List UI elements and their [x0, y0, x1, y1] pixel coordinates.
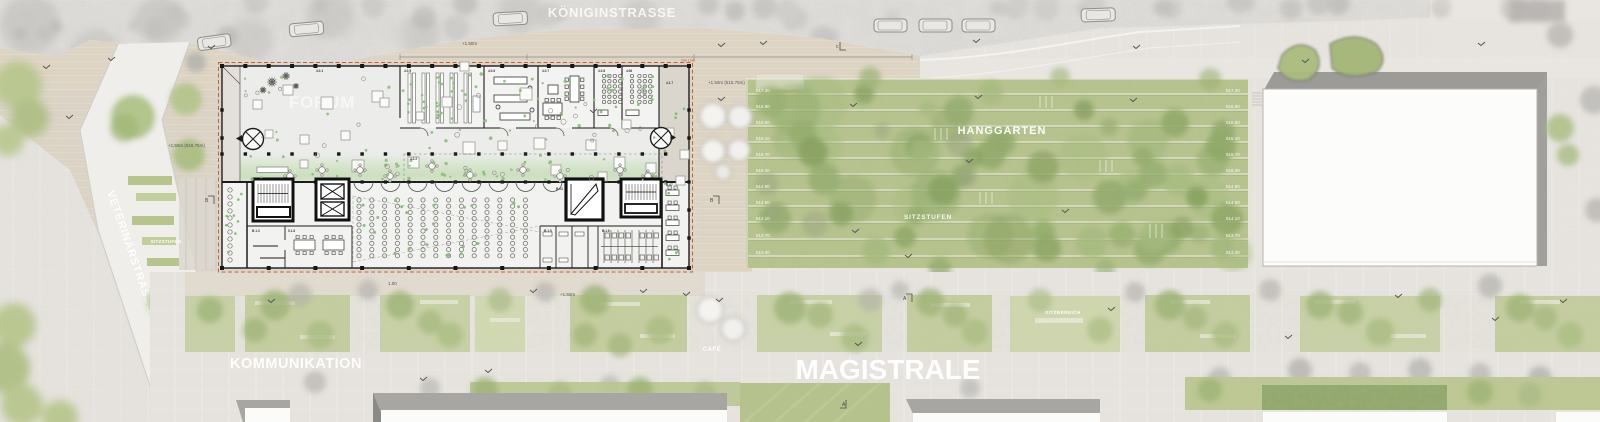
svg-text:513.30: 513.30	[756, 250, 770, 255]
svg-text:517.30: 517.30	[1226, 88, 1240, 93]
svg-text:+1.50m: +1.50m	[462, 41, 477, 46]
svg-text:516.90: 516.90	[756, 104, 770, 109]
svg-text:4.1.7: 4.1.7	[666, 81, 673, 85]
svg-text:515.30: 515.30	[1226, 168, 1240, 173]
svg-text:516.50: 516.50	[1226, 120, 1240, 125]
svg-text:4.0.8: 4.0.8	[598, 69, 605, 73]
svg-text:516.10: 516.10	[1226, 136, 1240, 141]
svg-text:B.03: B.03	[556, 187, 563, 191]
svg-text:rote Linie: rote Linie	[681, 59, 695, 63]
svg-text:514.10: 514.10	[756, 216, 770, 221]
svg-text:514.90: 514.90	[756, 184, 770, 189]
svg-text:4.06: 4.06	[626, 69, 632, 73]
svg-text:B.1.5: B.1.5	[544, 229, 552, 233]
svg-text:KÖNIGINSTRASSE: KÖNIGINSTRASSE	[548, 5, 676, 20]
svg-text:MAGISTRALE: MAGISTRALE	[795, 354, 980, 385]
svg-text:+1.50m (515.75m): +1.50m (515.75m)	[168, 143, 205, 148]
svg-text:4.0.1: 4.0.1	[316, 69, 323, 73]
svg-text:B.07: B.07	[666, 183, 673, 187]
svg-text:513.30: 513.30	[1226, 250, 1240, 255]
svg-text:1.00: 1.00	[388, 281, 397, 286]
svg-text:517.30: 517.30	[756, 88, 770, 93]
svg-text:SITZBEREICH: SITZBEREICH	[1045, 310, 1081, 315]
svg-text:SITZSTUFEN: SITZSTUFEN	[151, 239, 182, 244]
svg-text:4.2.2: 4.2.2	[410, 157, 417, 161]
svg-text:515.70: 515.70	[756, 152, 770, 157]
svg-text:KOMMUNIKATION: KOMMUNIKATION	[230, 356, 362, 372]
svg-text:514.50: 514.50	[1226, 200, 1240, 205]
svg-text:513.70: 513.70	[1226, 233, 1240, 238]
svg-text:516.90: 516.90	[1226, 104, 1240, 109]
svg-text:SITZSTUFEN: SITZSTUFEN	[904, 214, 952, 221]
svg-text:B.1.3: B.1.3	[252, 229, 260, 233]
svg-text:513.70: 513.70	[756, 233, 770, 238]
svg-text:5.1.8: 5.1.8	[288, 229, 295, 233]
svg-text:516.10: 516.10	[756, 136, 770, 141]
svg-text:B.1.6: B.1.6	[602, 229, 610, 233]
svg-text:514.90: 514.90	[1226, 184, 1240, 189]
svg-text:4.0.7: 4.0.7	[542, 69, 549, 73]
svg-text:HANGGARTEN: HANGGARTEN	[958, 125, 1047, 137]
svg-text:514.50: 514.50	[756, 200, 770, 205]
svg-text:+1.50m: +1.50m	[560, 292, 575, 297]
svg-text:+1.50m (515.75m): +1.50m (515.75m)	[708, 80, 745, 85]
svg-text:515.30: 515.30	[756, 168, 770, 173]
svg-text:514.10: 514.10	[1226, 216, 1240, 221]
svg-text:515.70: 515.70	[1226, 152, 1240, 157]
svg-text:CAFÉ: CAFÉ	[703, 345, 721, 353]
svg-text:516.50: 516.50	[756, 120, 770, 125]
svg-text:4.0.5: 4.0.5	[404, 69, 411, 73]
svg-text:4.0.6: 4.0.6	[488, 69, 495, 73]
